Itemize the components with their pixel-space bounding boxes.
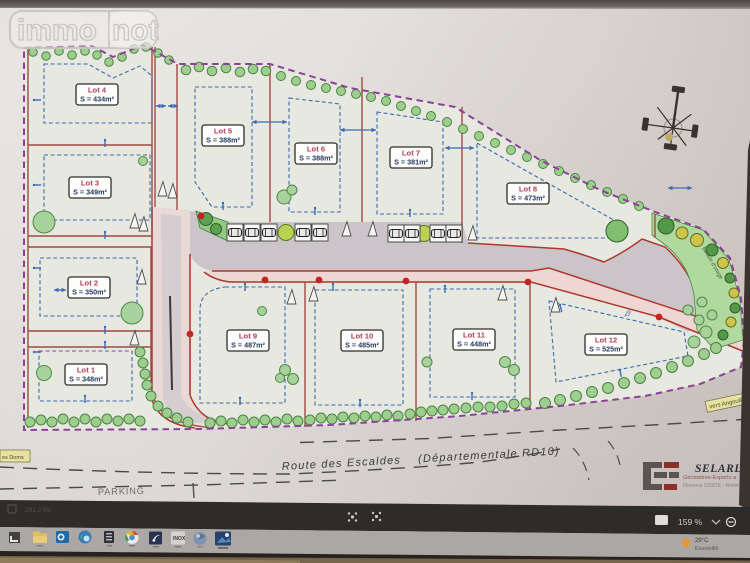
svg-text:Lot 8: Lot 8 [519,185,537,194]
svg-text:Lot 12: Lot 12 [595,336,617,345]
svg-text:S = 473m²: S = 473m² [511,194,545,203]
svg-text:S = 388m²: S = 388m² [299,154,333,163]
svg-text:Lot 10: Lot 10 [351,332,373,341]
svg-text:S = 349m²: S = 349m² [73,188,107,197]
svg-text:Ensoleillé: Ensoleillé [695,546,719,552]
svg-text:not: not [112,14,159,47]
svg-text:Florence COSTE - Noém: Florence COSTE - Noém [683,483,739,489]
svg-text:Lot 6: Lot 6 [307,145,325,154]
svg-text:S = 448m²: S = 448m² [457,340,491,349]
svg-text:Lot 9: Lot 9 [239,332,257,341]
svg-text:Lot 1: Lot 1 [77,366,96,375]
svg-text:S = 350m²: S = 350m² [72,288,106,297]
svg-text:Lot 2: Lot 2 [80,279,98,288]
svg-text:S = 381m²: S = 381m² [394,158,428,167]
svg-text:Lot 11: Lot 11 [463,331,486,340]
svg-text:291,2 Ko: 291,2 Ko [25,507,51,514]
svg-text:Lot 7: Lot 7 [402,149,420,158]
svg-text:Lot 5: Lot 5 [214,127,233,136]
svg-text:S = 525m²: S = 525m² [589,345,623,354]
svg-text:S = 487m²: S = 487m² [231,341,265,350]
svg-text:159 %: 159 % [678,517,703,527]
svg-text:S = 388m²: S = 388m² [206,136,240,145]
svg-text:29°C: 29°C [695,538,709,544]
svg-text:es Doms: es Doms [2,455,24,461]
svg-text:PARKING: PARKING [98,486,145,497]
svg-text:Géomètres-Experts a: Géomètres-Experts a [683,475,737,481]
svg-text:immo: immo [17,14,97,47]
svg-text:Lot 3: Lot 3 [81,179,99,188]
svg-text:S = 348m²: S = 348m² [69,375,103,384]
svg-text:S = 485m²: S = 485m² [345,341,379,350]
svg-text:INOX: INOX [173,536,186,542]
svg-text:S = 434m²: S = 434m² [80,95,114,104]
svg-text:Lot 4: Lot 4 [88,86,107,95]
